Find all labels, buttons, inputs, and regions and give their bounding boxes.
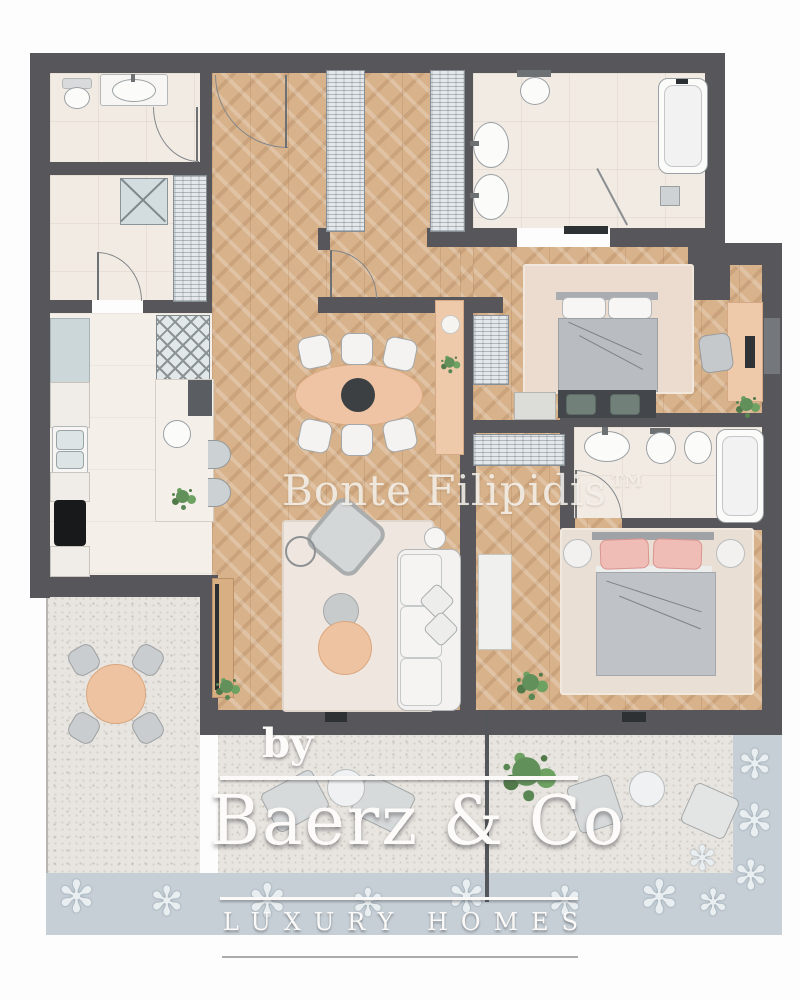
- kitchen-sink-bowl-2: [56, 451, 84, 469]
- sideboard-plant-icon: [444, 357, 454, 367]
- sofa-side-table: [424, 527, 446, 549]
- bath1-doormat: [564, 226, 608, 234]
- hall-wardrobe-right: [430, 70, 465, 232]
- desk-chair: [698, 332, 735, 374]
- bedroom1-dresser: [514, 392, 556, 420]
- bath1-toilet-icon: [520, 77, 550, 105]
- laundry-door-leaf: [97, 252, 99, 300]
- logo-line-top: [220, 776, 578, 780]
- bathtub-1-faucet: [676, 79, 688, 84]
- wall-right-lower: [762, 243, 782, 735]
- bath1-faucet-2: [470, 193, 479, 198]
- bed1-pillow-2: [608, 297, 652, 319]
- bathtub-1-basin: [664, 85, 702, 167]
- toilet-icon: [64, 87, 90, 109]
- bath2-sink-icon: [584, 431, 630, 462]
- bedroom2-plant-icon: [522, 674, 539, 691]
- nightstand-right: [716, 539, 745, 568]
- outdoor-table-left: [86, 664, 146, 724]
- garden-flower-icon: ✻: [736, 800, 773, 844]
- bedroom1-plant-icon: [740, 398, 753, 411]
- bed2-pillow-2: [652, 538, 702, 570]
- hall-wardrobe-left: [326, 70, 365, 232]
- terrace-edge-line: [46, 597, 48, 873]
- garden-flower-icon: ✻: [58, 876, 95, 920]
- wall-nook-chunk: [688, 243, 730, 300]
- kitchen-pantry-lattice: [156, 315, 210, 381]
- laundry-closet: [173, 175, 207, 302]
- wall-wc-bottom: [50, 162, 200, 175]
- floorplan-canvas: ✻ ✻ ✻ ✻ ✻ ✻ ✻ ✻ ✻ ✻ ✻ ✻ Bonte Filipidis™…: [0, 0, 800, 1000]
- bidet-icon: [684, 431, 712, 464]
- kitchen-island-appliance: [188, 380, 212, 416]
- shower-drain-icon: [660, 186, 680, 206]
- bedroom2-door-mat: [622, 712, 646, 722]
- logo-by: by: [262, 720, 313, 767]
- garden-flower-icon: ✻: [688, 842, 717, 876]
- monitor-icon: [745, 336, 755, 368]
- bath2-faucet: [602, 427, 608, 435]
- kitchen-counter-upper: [50, 382, 90, 428]
- wall-kitchen-bottom: [30, 575, 218, 597]
- tv-icon: [215, 584, 219, 690]
- kitchen-counter-lower: [50, 546, 90, 577]
- island-plant-icon: [176, 490, 189, 503]
- bath1-toilet-tank: [517, 70, 551, 77]
- watermark-text: Bonte Filipidis™: [282, 466, 650, 515]
- bedroom1-wardrobe: [473, 315, 509, 385]
- wall-right-upper: [705, 53, 725, 258]
- bed2-duvet: [596, 572, 716, 676]
- window-bedroom1: [764, 318, 780, 374]
- dining-chair-5: [341, 424, 373, 456]
- wc-door-leaf: [196, 107, 198, 161]
- sofa-cushion-3: [400, 658, 442, 706]
- logo-brand: Baerz & Co: [210, 782, 590, 861]
- bathtub-2-basin: [722, 436, 758, 516]
- dining-centerpiece: [341, 378, 375, 412]
- bed2-pillow-1: [599, 538, 649, 570]
- island-sink-icon: [163, 420, 191, 448]
- ring-side-table: [285, 536, 316, 567]
- wall-corridor-bottom: [318, 297, 503, 313]
- garden-flower-icon: ✻: [640, 874, 679, 920]
- living-door-mat: [325, 712, 347, 722]
- outdoor-glass-table-2: [629, 771, 665, 807]
- wall-laundry-bottom-a: [48, 300, 92, 313]
- dining-chair-2: [341, 333, 373, 365]
- kitchen-counter-blue: [50, 318, 90, 384]
- logo-line-bottom: [220, 897, 578, 900]
- kitchen-sink-bowl-1: [56, 430, 84, 450]
- bed1-bench-cushion-1: [566, 394, 596, 415]
- nightstand-left: [563, 539, 592, 568]
- bed1-pillow-1: [562, 297, 606, 319]
- garden-flower-icon: ✻: [150, 882, 184, 922]
- wc-sink-icon: [112, 79, 156, 102]
- footer-line: [222, 956, 578, 958]
- bed1-duvet: [558, 318, 658, 392]
- logo-tagline: LUXURY HOMES: [210, 908, 590, 936]
- wall-bedroom2-top: [460, 420, 570, 433]
- sideboard-vase-icon: [441, 315, 460, 334]
- pouf-peach: [318, 621, 372, 675]
- entry-door-leaf: [285, 75, 287, 148]
- living-plant-icon: [220, 680, 233, 693]
- garden-flower-icon: ✻: [738, 745, 772, 785]
- garden-flower-icon: ✻: [698, 886, 728, 922]
- wall-left: [30, 53, 50, 598]
- bed1-bench-cushion-2: [610, 394, 640, 415]
- bath1-faucet-1: [470, 141, 479, 146]
- bedroom2-wardrobe: [478, 554, 512, 650]
- wall-top: [30, 53, 725, 73]
- bedroom2-closet: [473, 434, 565, 466]
- garden-flower-icon: ✻: [734, 856, 768, 896]
- kitchen-counter-mid: [50, 472, 90, 502]
- cooktop-icon: [54, 500, 86, 546]
- bath2-toilet-icon: [646, 432, 676, 464]
- wc-faucet-icon: [131, 74, 135, 82]
- corridor-door-leaf: [330, 250, 332, 297]
